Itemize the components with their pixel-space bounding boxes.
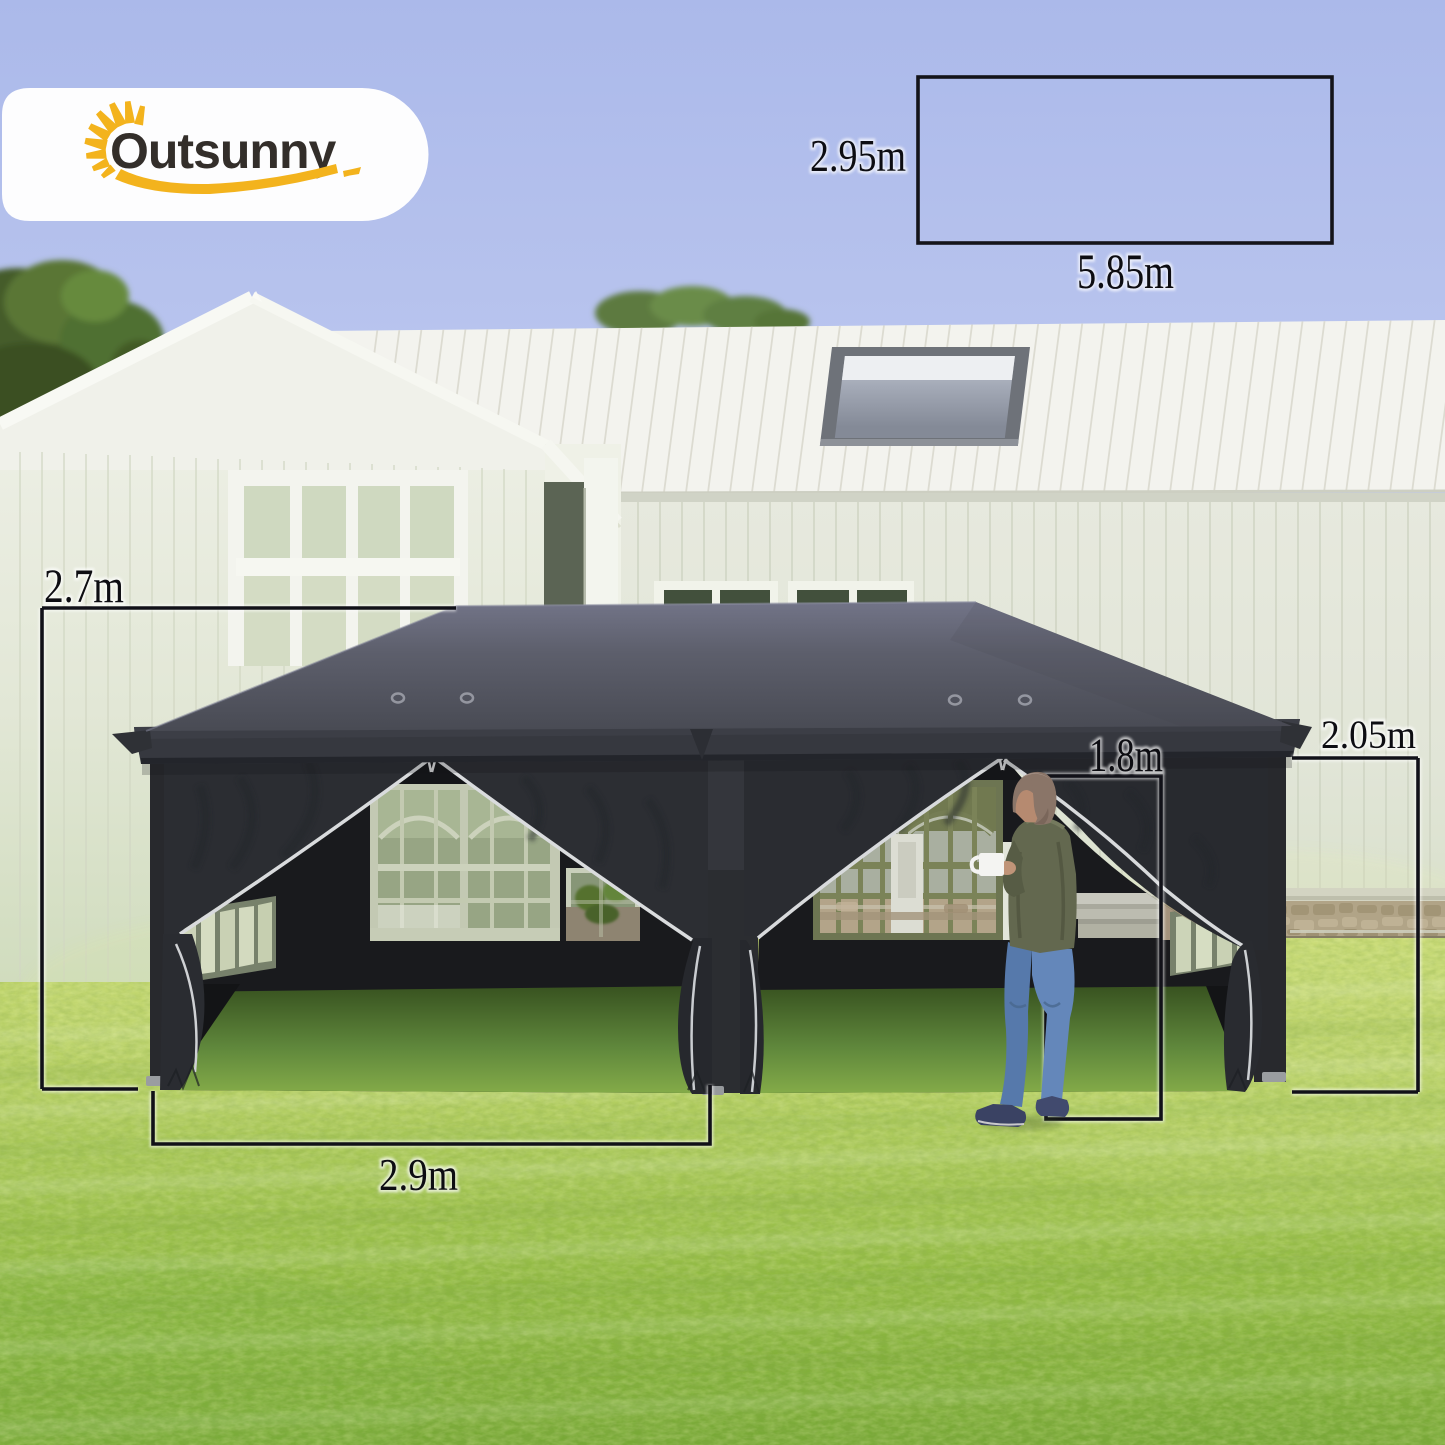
- svg-text:2.7m: 2.7m: [44, 560, 124, 613]
- svg-text:2.05m: 2.05m: [1321, 712, 1416, 757]
- svg-text:2.95m: 2.95m: [810, 130, 906, 181]
- svg-text:2.9m: 2.9m: [379, 1149, 458, 1200]
- svg-text:Outsunny: Outsunny: [110, 123, 337, 179]
- svg-text:5.85m: 5.85m: [1077, 243, 1174, 299]
- svg-text:1.8m: 1.8m: [1089, 729, 1163, 782]
